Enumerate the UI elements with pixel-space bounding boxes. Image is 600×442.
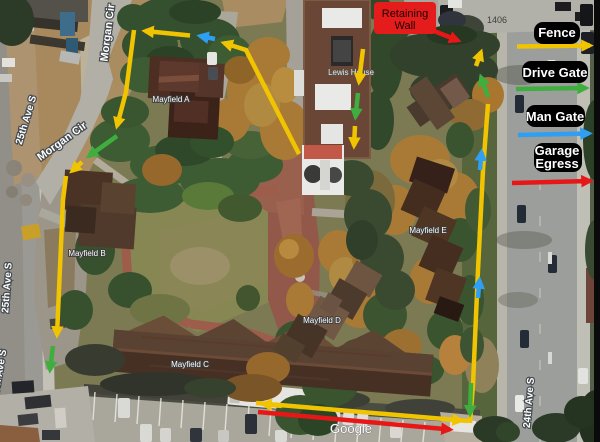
svg-text:Fence: Fence bbox=[538, 25, 576, 40]
svg-text:Wall: Wall bbox=[395, 20, 416, 32]
svg-text:Mayfield B: Mayfield B bbox=[68, 249, 105, 258]
svg-text:Mayfield A: Mayfield A bbox=[153, 95, 191, 104]
svg-text:Mayfield D: Mayfield D bbox=[303, 316, 341, 325]
svg-text:Retaining: Retaining bbox=[382, 8, 428, 20]
svg-text:1406: 1406 bbox=[487, 15, 507, 25]
svg-text:Egress: Egress bbox=[535, 156, 578, 171]
svg-text:Mayfield C: Mayfield C bbox=[171, 360, 209, 369]
svg-text:Man Gate: Man Gate bbox=[526, 109, 585, 124]
svg-text:Mayfield E: Mayfield E bbox=[409, 226, 446, 235]
svg-text:Lewis House: Lewis House bbox=[328, 68, 374, 77]
svg-text:Drive Gate: Drive Gate bbox=[522, 65, 587, 80]
